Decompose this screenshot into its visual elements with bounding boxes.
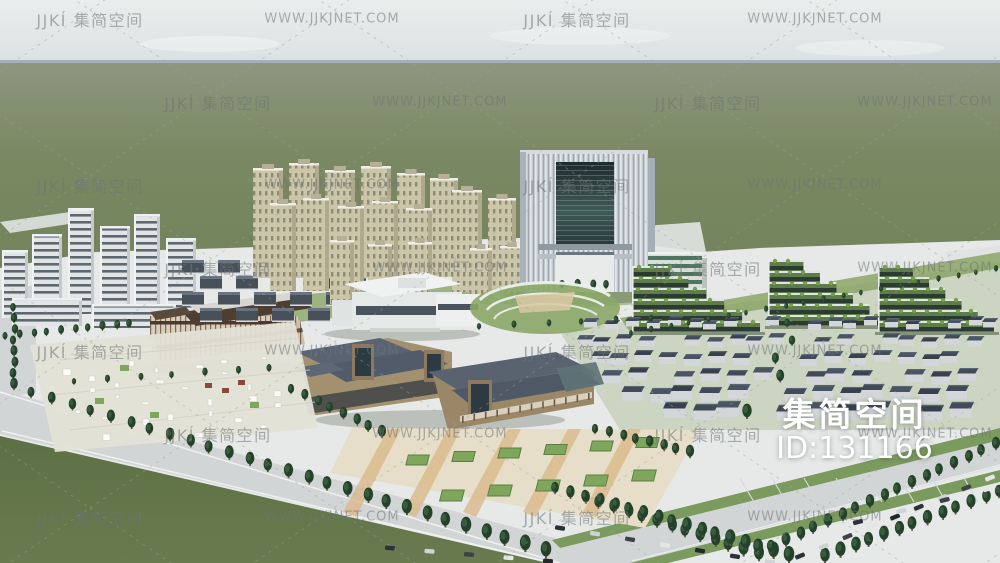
scene-3d-model <box>0 0 1000 563</box>
watermark-lattice <box>0 0 1000 563</box>
render-viewport: JJKÍ 集简空间WWW.JJKJNET.COMJJKÍ 集简空间WWW.JJK… <box>0 0 1000 563</box>
